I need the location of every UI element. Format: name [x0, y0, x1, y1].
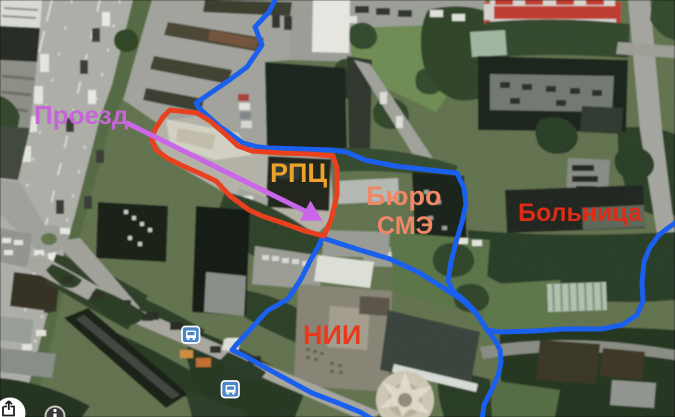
- svg-text:Проезд: Проезд: [34, 100, 129, 130]
- svg-text:НИИ: НИИ: [303, 320, 361, 350]
- svg-text:Больница: Больница: [518, 199, 643, 227]
- svg-text:РПЦ: РПЦ: [270, 158, 327, 188]
- svg-text:СМЭ: СМЭ: [377, 212, 433, 240]
- svg-text:Бюро: Бюро: [366, 181, 441, 211]
